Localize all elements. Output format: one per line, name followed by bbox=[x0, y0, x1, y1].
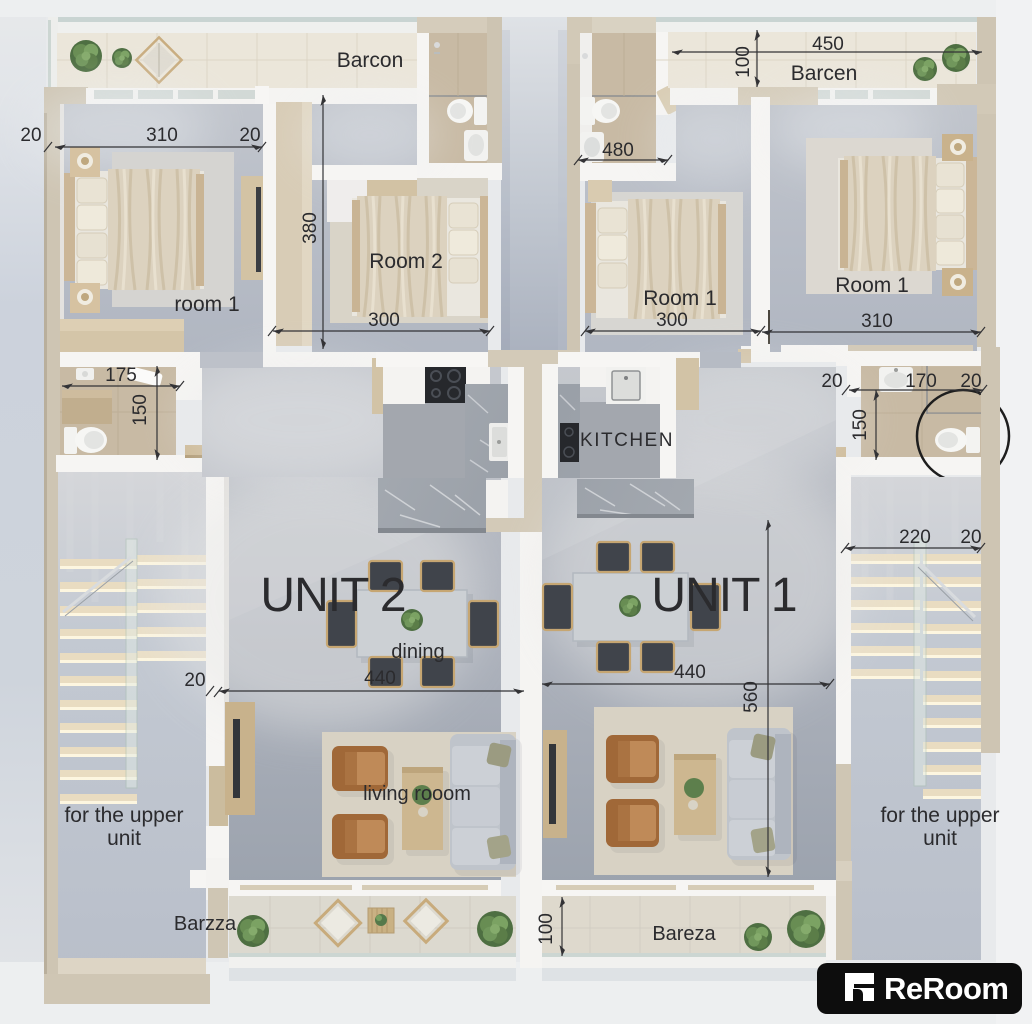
svg-text:220: 220 bbox=[899, 527, 931, 548]
svg-text:Bareza: Bareza bbox=[652, 923, 716, 945]
svg-text:ReRoom: ReRoom bbox=[884, 971, 1008, 1006]
svg-text:Room 2: Room 2 bbox=[369, 250, 443, 273]
svg-text:20: 20 bbox=[960, 527, 981, 548]
svg-text:20: 20 bbox=[239, 125, 260, 146]
svg-text:20: 20 bbox=[821, 371, 842, 392]
svg-text:170: 170 bbox=[905, 371, 937, 392]
svg-text:Barcon: Barcon bbox=[337, 49, 404, 72]
svg-text:150: 150 bbox=[850, 409, 871, 441]
svg-text:480: 480 bbox=[602, 140, 634, 161]
svg-text:living rooom: living rooom bbox=[363, 783, 471, 805]
svg-text:room 1: room 1 bbox=[174, 293, 239, 316]
svg-text:440: 440 bbox=[674, 662, 706, 683]
svg-text:560: 560 bbox=[741, 681, 762, 713]
svg-text:Room 1: Room 1 bbox=[643, 287, 717, 310]
svg-text:300: 300 bbox=[656, 310, 688, 331]
svg-text:Barcen: Barcen bbox=[791, 62, 858, 85]
svg-text:310: 310 bbox=[146, 125, 178, 146]
svg-text:440: 440 bbox=[364, 668, 396, 689]
svg-text:Barzza: Barzza bbox=[174, 913, 237, 935]
svg-text:dining: dining bbox=[391, 641, 444, 663]
svg-text:100: 100 bbox=[536, 913, 557, 945]
svg-text:450: 450 bbox=[812, 34, 844, 55]
svg-text:20: 20 bbox=[184, 670, 205, 691]
svg-text:unit: unit bbox=[107, 827, 141, 850]
svg-text:100: 100 bbox=[733, 46, 754, 78]
svg-text:310: 310 bbox=[861, 311, 893, 332]
svg-text:Room 1: Room 1 bbox=[835, 274, 909, 297]
svg-text:175: 175 bbox=[105, 365, 137, 386]
svg-text:20: 20 bbox=[20, 125, 41, 146]
svg-text:20: 20 bbox=[960, 371, 981, 392]
svg-text:KITCHEN: KITCHEN bbox=[580, 430, 674, 451]
svg-text:380: 380 bbox=[300, 212, 321, 244]
svg-text:for the upper: for the upper bbox=[880, 804, 999, 827]
svg-text:UNIT 2: UNIT 2 bbox=[260, 569, 405, 622]
svg-text:300: 300 bbox=[368, 310, 400, 331]
svg-text:UNIT 1: UNIT 1 bbox=[651, 569, 796, 622]
svg-text:150: 150 bbox=[130, 394, 151, 426]
svg-text:for the upper: for the upper bbox=[64, 804, 183, 827]
svg-text:unit: unit bbox=[923, 827, 957, 850]
